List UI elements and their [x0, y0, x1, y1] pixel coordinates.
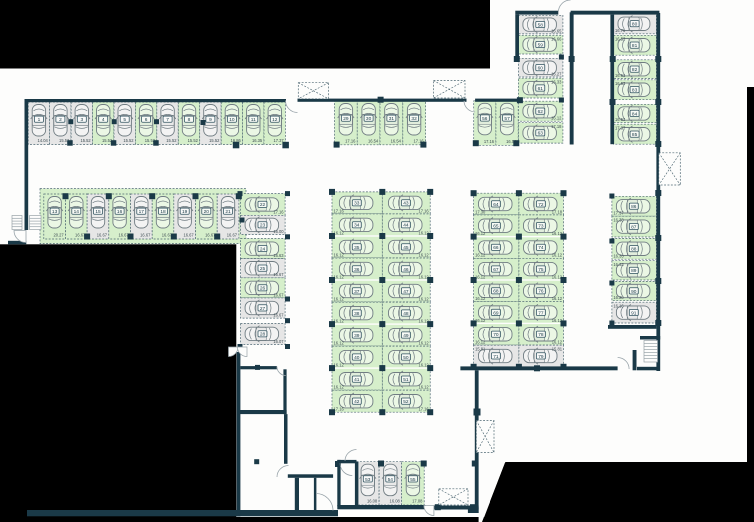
- svg-text:40: 40: [354, 355, 360, 361]
- svg-text:16.35: 16.35: [252, 138, 263, 143]
- svg-text:17.18: 17.18: [551, 124, 562, 129]
- svg-text:54: 54: [388, 477, 394, 483]
- svg-text:17: 17: [139, 209, 145, 215]
- svg-text:14.04: 14.04: [38, 138, 49, 143]
- svg-text:16.63: 16.63: [273, 253, 284, 258]
- svg-text:31: 31: [389, 116, 395, 122]
- svg-text:16.12: 16.12: [552, 253, 563, 258]
- svg-text:51: 51: [403, 377, 409, 383]
- svg-text:16.12: 16.12: [475, 274, 486, 279]
- svg-text:81: 81: [632, 43, 638, 49]
- svg-text:16.12: 16.12: [475, 296, 486, 301]
- svg-text:79: 79: [538, 354, 544, 360]
- svg-text:5: 5: [123, 117, 126, 123]
- svg-text:16.12: 16.12: [551, 116, 562, 121]
- svg-text:69: 69: [493, 310, 499, 316]
- svg-text:70: 70: [493, 332, 499, 338]
- svg-text:16.12: 16.12: [552, 296, 563, 301]
- svg-text:27: 27: [260, 306, 266, 312]
- svg-text:16.53: 16.53: [615, 81, 626, 86]
- svg-text:22: 22: [260, 202, 266, 208]
- svg-text:16.67: 16.67: [140, 233, 151, 238]
- svg-text:29: 29: [343, 116, 349, 122]
- svg-text:18: 18: [160, 209, 166, 215]
- svg-text:4: 4: [102, 117, 105, 123]
- svg-text:25: 25: [260, 266, 266, 272]
- svg-text:16.66: 16.66: [551, 37, 562, 42]
- svg-text:90: 90: [631, 289, 637, 295]
- svg-text:15: 15: [95, 209, 101, 215]
- svg-text:17.30: 17.30: [475, 209, 486, 214]
- svg-text:20: 20: [204, 209, 210, 215]
- svg-text:1: 1: [38, 117, 41, 123]
- svg-text:85: 85: [632, 132, 638, 138]
- svg-text:16.67: 16.67: [273, 272, 284, 277]
- svg-text:55: 55: [410, 477, 416, 483]
- svg-text:17.37: 17.37: [613, 211, 624, 216]
- svg-text:41: 41: [354, 377, 360, 383]
- svg-text:8: 8: [188, 117, 191, 123]
- svg-text:58: 58: [538, 22, 544, 28]
- svg-text:2: 2: [59, 117, 62, 123]
- svg-text:71: 71: [493, 354, 499, 360]
- svg-text:26: 26: [260, 286, 266, 292]
- svg-text:16.33: 16.33: [613, 254, 624, 259]
- svg-text:15.81: 15.81: [552, 346, 563, 351]
- svg-text:28: 28: [260, 332, 266, 338]
- svg-text:17.16: 17.16: [418, 208, 429, 213]
- svg-text:32: 32: [411, 116, 417, 122]
- svg-text:87: 87: [631, 224, 637, 230]
- svg-text:15.52: 15.52: [166, 138, 177, 143]
- svg-text:14: 14: [74, 209, 80, 215]
- svg-text:16.33: 16.33: [613, 262, 624, 267]
- svg-text:39: 39: [354, 333, 360, 339]
- svg-text:17.16: 17.16: [334, 407, 345, 412]
- svg-text:77: 77: [538, 310, 544, 316]
- svg-text:16.12: 16.12: [552, 340, 563, 345]
- svg-text:16.33: 16.33: [613, 217, 624, 222]
- svg-text:20.27: 20.27: [53, 233, 64, 238]
- svg-text:21: 21: [225, 209, 231, 215]
- svg-text:17.37: 17.37: [615, 125, 626, 130]
- svg-text:16.54: 16.54: [368, 139, 379, 144]
- svg-text:17.16: 17.16: [484, 139, 495, 144]
- svg-text:64: 64: [493, 202, 499, 208]
- svg-text:65: 65: [493, 224, 499, 230]
- svg-text:7: 7: [166, 117, 169, 123]
- svg-text:43: 43: [403, 201, 409, 207]
- svg-text:16.33: 16.33: [551, 79, 562, 84]
- svg-text:83: 83: [632, 88, 638, 94]
- svg-text:16.00: 16.00: [273, 229, 284, 234]
- svg-text:84: 84: [632, 111, 638, 117]
- svg-text:36: 36: [354, 267, 360, 273]
- svg-text:62: 62: [538, 109, 544, 115]
- svg-text:16.12: 16.12: [334, 385, 345, 390]
- svg-text:17.08: 17.08: [412, 499, 423, 504]
- svg-text:16.12: 16.12: [475, 231, 486, 236]
- svg-text:60: 60: [538, 66, 544, 72]
- svg-text:16.12: 16.12: [418, 341, 429, 346]
- svg-text:16.12: 16.12: [334, 363, 345, 368]
- svg-text:73: 73: [538, 224, 544, 230]
- svg-text:46: 46: [403, 267, 409, 273]
- svg-text:74: 74: [538, 245, 544, 251]
- svg-text:9: 9: [209, 117, 212, 123]
- svg-text:12: 12: [272, 117, 278, 123]
- svg-text:16.12: 16.12: [475, 253, 486, 258]
- svg-text:16.12: 16.12: [418, 296, 429, 301]
- svg-text:33: 33: [354, 201, 360, 207]
- svg-text:16.12: 16.12: [334, 296, 345, 301]
- svg-text:16.27: 16.27: [551, 71, 562, 76]
- svg-text:3: 3: [80, 117, 83, 123]
- svg-text:48: 48: [403, 311, 409, 317]
- svg-text:15.52: 15.52: [123, 138, 134, 143]
- svg-text:16.12: 16.12: [334, 252, 345, 257]
- svg-text:52: 52: [403, 399, 409, 405]
- svg-text:75: 75: [538, 267, 544, 273]
- svg-text:42: 42: [354, 399, 360, 405]
- svg-text:63: 63: [538, 131, 544, 137]
- svg-text:61: 61: [538, 86, 544, 92]
- svg-text:16.12: 16.12: [418, 385, 429, 390]
- svg-text:38: 38: [354, 311, 360, 317]
- svg-text:68: 68: [493, 289, 499, 295]
- svg-text:16.76: 16.76: [615, 28, 626, 33]
- svg-text:16.12: 16.12: [475, 340, 486, 345]
- svg-text:16.65: 16.65: [551, 28, 562, 33]
- svg-text:37: 37: [354, 289, 360, 295]
- svg-text:88: 88: [631, 247, 637, 253]
- svg-text:13: 13: [52, 209, 58, 215]
- svg-text:89: 89: [631, 268, 637, 274]
- svg-text:80: 80: [632, 22, 638, 28]
- svg-text:16.67: 16.67: [227, 233, 238, 238]
- svg-text:19: 19: [182, 209, 188, 215]
- svg-text:35: 35: [354, 245, 360, 251]
- svg-text:15.52: 15.52: [188, 138, 199, 143]
- svg-text:16.12: 16.12: [334, 230, 345, 235]
- svg-text:76: 76: [538, 289, 544, 295]
- svg-text:91: 91: [631, 310, 637, 316]
- svg-text:34: 34: [354, 223, 360, 229]
- svg-text:15.52: 15.52: [80, 138, 91, 143]
- svg-text:16.12: 16.12: [475, 318, 486, 323]
- svg-text:59: 59: [538, 42, 544, 48]
- svg-text:24: 24: [260, 246, 266, 252]
- svg-text:56: 56: [482, 116, 488, 122]
- svg-text:72: 72: [538, 202, 544, 208]
- svg-text:49: 49: [403, 333, 409, 339]
- svg-text:23: 23: [260, 223, 266, 229]
- svg-text:16.67: 16.67: [273, 313, 284, 318]
- svg-text:50: 50: [403, 355, 409, 361]
- svg-text:16.12: 16.12: [334, 341, 345, 346]
- svg-text:16.08: 16.08: [367, 499, 378, 504]
- svg-text:16.67: 16.67: [183, 233, 194, 238]
- svg-text:78: 78: [538, 332, 544, 338]
- svg-text:16.53: 16.53: [615, 73, 626, 78]
- svg-text:16.67: 16.67: [273, 292, 284, 297]
- svg-text:17.16: 17.16: [345, 139, 356, 144]
- svg-text:66: 66: [493, 245, 499, 251]
- svg-text:67: 67: [493, 267, 499, 273]
- svg-text:6: 6: [145, 117, 148, 123]
- svg-text:16.16: 16.16: [613, 303, 624, 308]
- svg-text:16.07: 16.07: [273, 339, 284, 344]
- svg-text:16.53: 16.53: [615, 117, 626, 122]
- svg-text:16.53: 16.53: [615, 37, 626, 42]
- svg-text:17.16: 17.16: [273, 210, 284, 215]
- svg-text:15.52: 15.52: [209, 138, 220, 143]
- svg-text:17.18: 17.18: [552, 209, 563, 214]
- svg-text:16.12: 16.12: [334, 319, 345, 324]
- svg-text:53: 53: [365, 477, 371, 483]
- svg-text:11: 11: [251, 117, 256, 123]
- svg-text:16.12: 16.12: [334, 274, 345, 279]
- svg-text:82: 82: [632, 67, 638, 73]
- svg-text:15.81: 15.81: [475, 346, 486, 351]
- svg-text:16.12: 16.12: [418, 252, 429, 257]
- svg-text:86: 86: [631, 204, 637, 210]
- svg-text:45: 45: [403, 245, 409, 251]
- svg-text:10: 10: [229, 117, 235, 123]
- svg-text:47: 47: [403, 289, 409, 295]
- svg-text:16.54: 16.54: [391, 139, 402, 144]
- svg-text:16: 16: [117, 209, 123, 215]
- svg-text:16.20: 16.20: [613, 295, 624, 300]
- svg-text:17.16: 17.16: [334, 208, 345, 213]
- svg-text:44: 44: [403, 223, 409, 229]
- svg-text:16.67: 16.67: [97, 233, 108, 238]
- svg-text:57: 57: [504, 116, 510, 122]
- svg-text:30: 30: [366, 116, 372, 122]
- svg-text:16.08: 16.08: [390, 499, 401, 504]
